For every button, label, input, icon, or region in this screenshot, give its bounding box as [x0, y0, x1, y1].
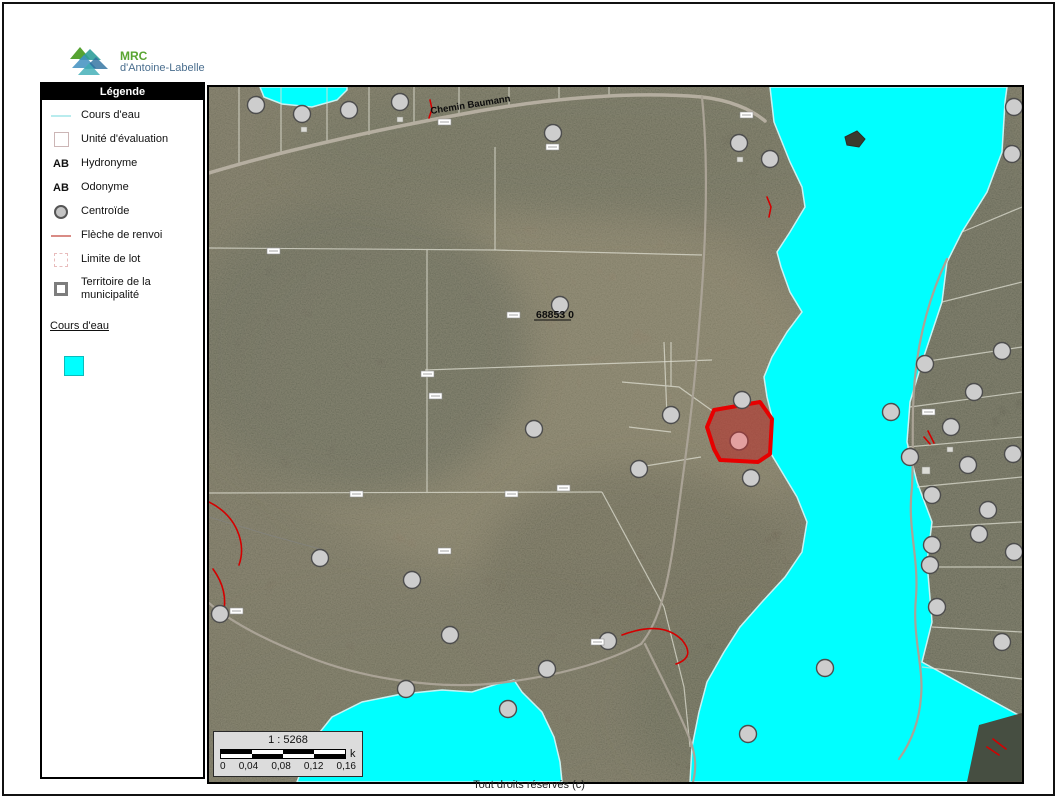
centroid-marker[interactable]	[341, 102, 358, 119]
centroid-marker[interactable]	[398, 681, 415, 698]
scale-bar-graphic	[220, 749, 346, 759]
water-layer-swatch	[64, 356, 84, 376]
legend-item-odonyme: AB Odonyme	[50, 180, 197, 195]
legend-item-label: Hydronyme	[81, 157, 137, 170]
centroid-marker[interactable]	[917, 356, 934, 373]
dashed-square-swatch	[50, 253, 72, 267]
centroid-marker[interactable]	[1005, 446, 1022, 463]
mrc-logo-icon	[70, 45, 114, 79]
centroid-marker[interactable]	[743, 470, 760, 487]
scale-tick: 0,08	[271, 761, 290, 772]
scale-tick: 0	[220, 761, 226, 772]
legend-item-label: Unité d'évaluation	[81, 133, 168, 146]
scale-unit: k	[350, 748, 356, 760]
legend-item-label: Flèche de renvoi	[81, 229, 162, 242]
map-viewport[interactable]: Chemin Baumann 68853 0	[207, 85, 1024, 784]
centroid-marker[interactable]	[212, 606, 229, 623]
map-svg[interactable]: Chemin Baumann 68853 0	[209, 87, 1022, 782]
legend-item-cours-deau: Cours d'eau	[50, 108, 197, 123]
centroid-marker[interactable]	[924, 537, 941, 554]
centroid-marker[interactable]	[980, 502, 997, 519]
scale-tick: 0,04	[239, 761, 258, 772]
centroid-marker[interactable]	[1006, 99, 1023, 116]
centroid-marker[interactable]	[248, 97, 265, 114]
centroid-marker[interactable]	[922, 557, 939, 574]
legend-item-territoire: Territoire de la municipalité	[50, 276, 197, 301]
centroid-marker[interactable]	[526, 421, 543, 438]
centroid-marker[interactable]	[994, 343, 1011, 360]
centroid-marker[interactable]	[943, 419, 960, 436]
centroid-marker[interactable]	[1006, 544, 1023, 561]
centroid-marker[interactable]	[740, 726, 757, 743]
layer-link-cours-deau[interactable]: Cours d'eau	[50, 320, 109, 332]
legend-item-label: Odonyme	[81, 181, 129, 194]
scale-ratio: 1 : 5268	[220, 734, 356, 746]
legend-title: Légende	[42, 84, 203, 100]
legend-item-centroide: Centroïde	[50, 204, 197, 219]
centroid-marker[interactable]	[294, 106, 311, 123]
centroid-marker[interactable]	[762, 151, 779, 168]
legend-item-label: Cours d'eau	[81, 109, 140, 122]
centroid-marker[interactable]	[404, 572, 421, 589]
centroid-marker[interactable]	[883, 404, 900, 421]
scale-tick: 0,12	[304, 761, 323, 772]
thick-square-swatch	[50, 282, 72, 296]
centroid-marker[interactable]	[994, 634, 1011, 651]
legend-item-hydronyme: AB Hydronyme	[50, 156, 197, 171]
stream-line-swatch	[50, 115, 72, 117]
centroid-marker[interactable]	[966, 384, 983, 401]
copyright-text: Tout droits réservés (c)	[0, 779, 1058, 791]
centroid-marker[interactable]	[924, 487, 941, 504]
logo-acronym: MRC	[120, 50, 205, 63]
centroid-marker[interactable]	[960, 457, 977, 474]
legend-item-unite-evaluation: Unité d'évaluation	[50, 132, 197, 147]
centroid-marker[interactable]	[817, 660, 834, 677]
centroid-marker[interactable]	[929, 599, 946, 616]
legend-item-fleche-renvoi: Flèche de renvoi	[50, 228, 197, 243]
centroid-marker[interactable]	[731, 135, 748, 152]
centroid-marker[interactable]	[392, 94, 409, 111]
legend-item-label: Centroïde	[81, 205, 129, 218]
scale-bar: 1 : 5268 k 0 0,04 0,08 0,12 0,16	[213, 731, 363, 777]
scale-tick: 0,16	[337, 761, 356, 772]
centroid-marker[interactable]	[539, 661, 556, 678]
centroid-marker[interactable]	[442, 627, 459, 644]
centroid-marker[interactable]	[545, 125, 562, 142]
red-line-swatch	[50, 235, 72, 237]
legend-item-limite-lot: Limite de lot	[50, 252, 197, 267]
legend-item-label: Limite de lot	[81, 253, 140, 266]
selected-centroid[interactable]	[730, 432, 748, 450]
page: MRC d'Antoine-Labelle Légende Cours d'ea…	[0, 0, 1058, 799]
unit-square-swatch	[50, 132, 72, 147]
legend-panel: Légende Cours d'eau Unité d'évaluation A…	[40, 82, 205, 779]
scale-ticks: 0 0,04 0,08 0,12 0,16	[220, 761, 356, 772]
logo-name: d'Antoine-Labelle	[120, 63, 205, 75]
legend-item-label: Territoire de la municipalité	[81, 276, 197, 301]
centroid-circle-swatch	[50, 205, 72, 219]
ab-text-swatch: AB	[50, 182, 72, 194]
centroid-marker[interactable]	[902, 449, 919, 466]
ab-text-swatch: AB	[50, 158, 72, 170]
parcel-number-label: 68853 0	[536, 309, 574, 321]
mrc-logo: MRC d'Antoine-Labelle	[70, 44, 250, 80]
centroid-marker[interactable]	[1004, 146, 1021, 163]
legend-items: Cours d'eau Unité d'évaluation AB Hydron…	[42, 100, 203, 301]
centroid-marker[interactable]	[734, 392, 751, 409]
centroid-marker[interactable]	[663, 407, 680, 424]
centroid-marker[interactable]	[500, 701, 517, 718]
centroid-marker[interactable]	[971, 526, 988, 543]
centroid-marker[interactable]	[312, 550, 329, 567]
centroid-marker[interactable]	[631, 461, 648, 478]
